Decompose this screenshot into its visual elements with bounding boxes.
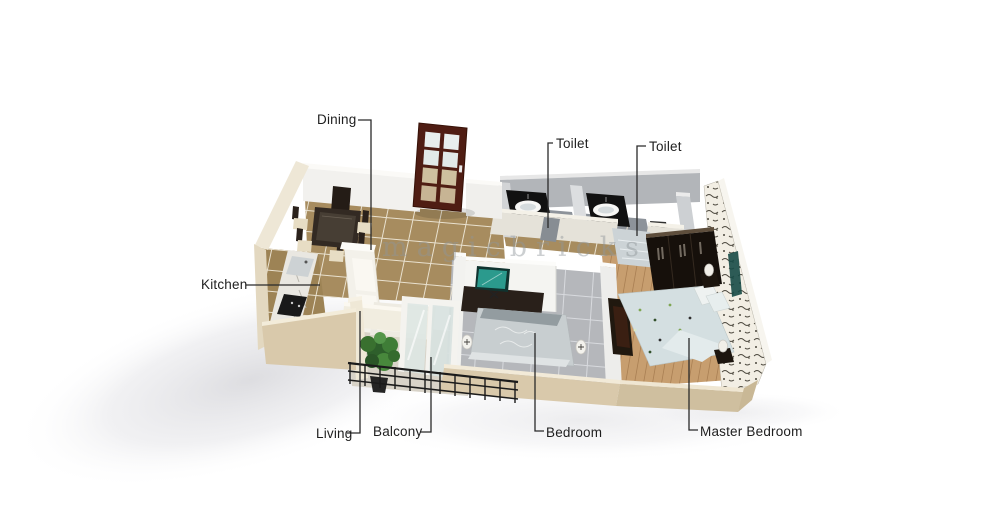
bedside-lamp xyxy=(719,340,728,352)
room-label-bedroom: Bedroom xyxy=(546,425,602,441)
room-label-kitchen: Kitchen xyxy=(201,277,247,293)
watermark: magicbricks xyxy=(382,232,648,263)
floor-plan-image: magicbricks Dining Toilet Toilet Kitchen… xyxy=(0,0,1000,510)
door-handle xyxy=(459,165,462,172)
room-label-dining: Dining xyxy=(317,112,356,128)
room-label-master-bedroom: Master Bedroom xyxy=(700,424,803,440)
room-label-toilet-2: Toilet xyxy=(649,139,682,155)
room-label-balcony: Balcony xyxy=(373,424,422,440)
bedside-lamp xyxy=(705,264,714,276)
room-label-living: Living xyxy=(316,426,352,442)
room-label-toilet-1: Toilet xyxy=(556,136,589,152)
